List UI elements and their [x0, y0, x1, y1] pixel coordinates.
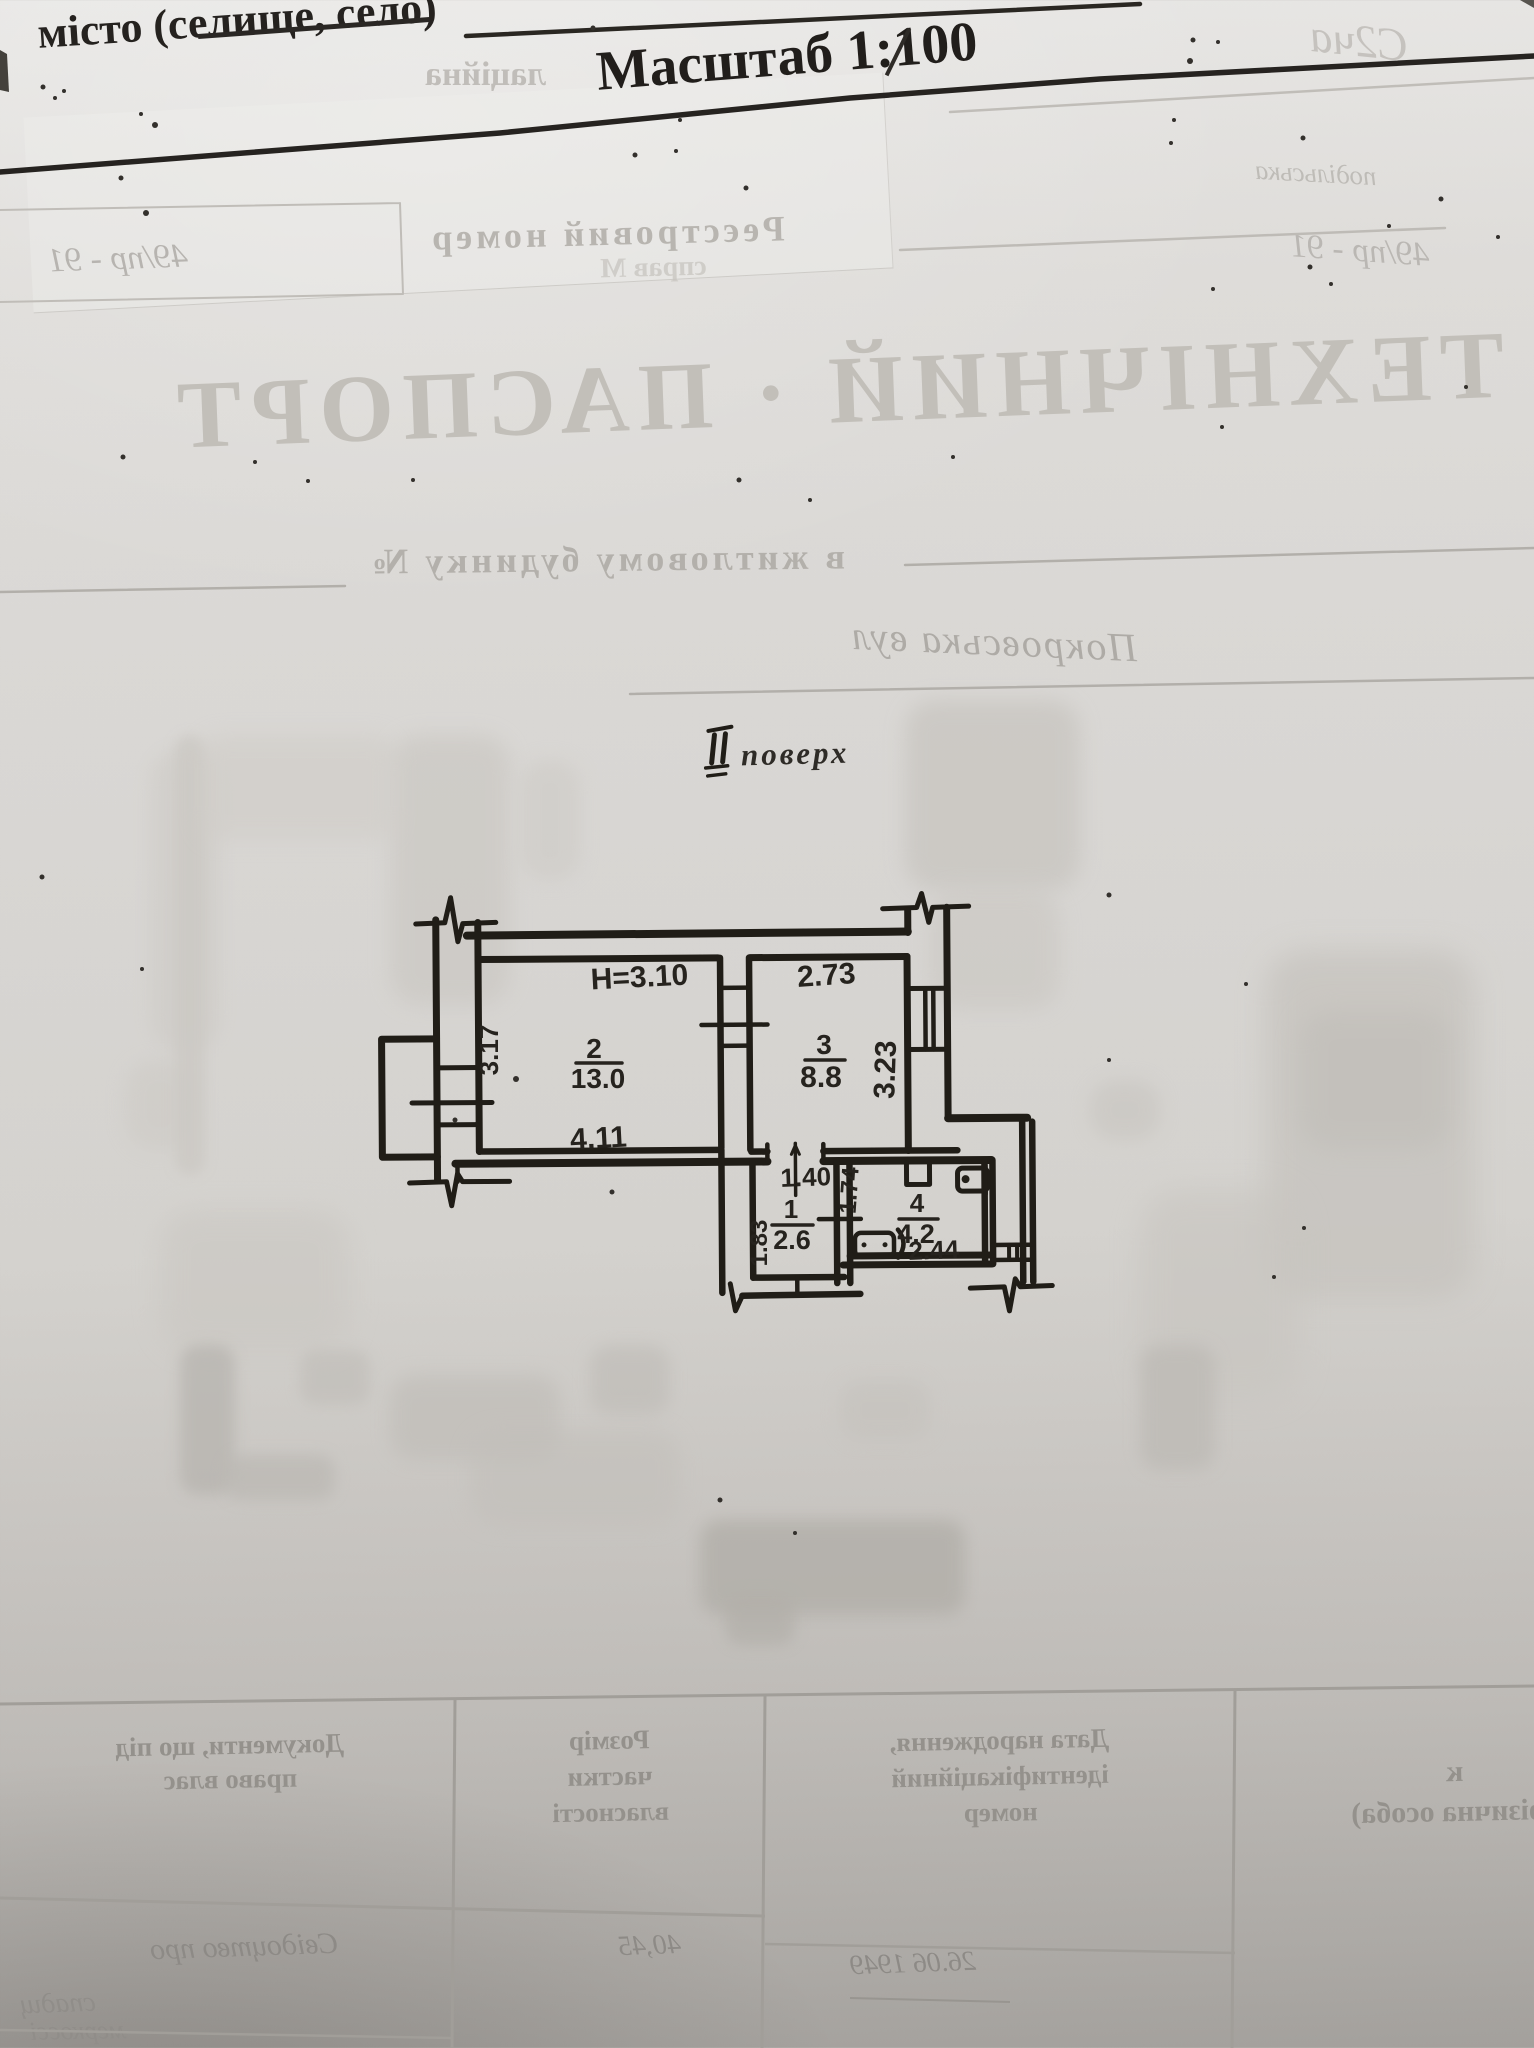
svg-text:2: 2 [586, 1033, 602, 1064]
svg-text:3.23: 3.23 [868, 1040, 903, 1100]
svg-text:1.83: 1.83 [746, 1220, 773, 1267]
svg-text:1: 1 [784, 1194, 798, 1224]
svg-text:2.73: 2.73 [796, 957, 857, 994]
svg-text:2.44: 2.44 [908, 1234, 960, 1266]
svg-text:Н=3.10: Н=3.10 [590, 958, 689, 996]
svg-text:8.8: 8.8 [800, 1061, 842, 1094]
svg-text:1.74: 1.74 [834, 1166, 864, 1215]
svg-text:4.11: 4.11 [569, 1121, 627, 1157]
svg-text:2.6: 2.6 [773, 1225, 811, 1255]
svg-text:3: 3 [816, 1029, 832, 1060]
svg-text:4: 4 [910, 1188, 925, 1218]
svg-text:3.17: 3.17 [474, 1025, 504, 1076]
svg-text:1.40: 1.40 [780, 1161, 832, 1193]
svg-text:13.0: 13.0 [571, 1063, 626, 1094]
